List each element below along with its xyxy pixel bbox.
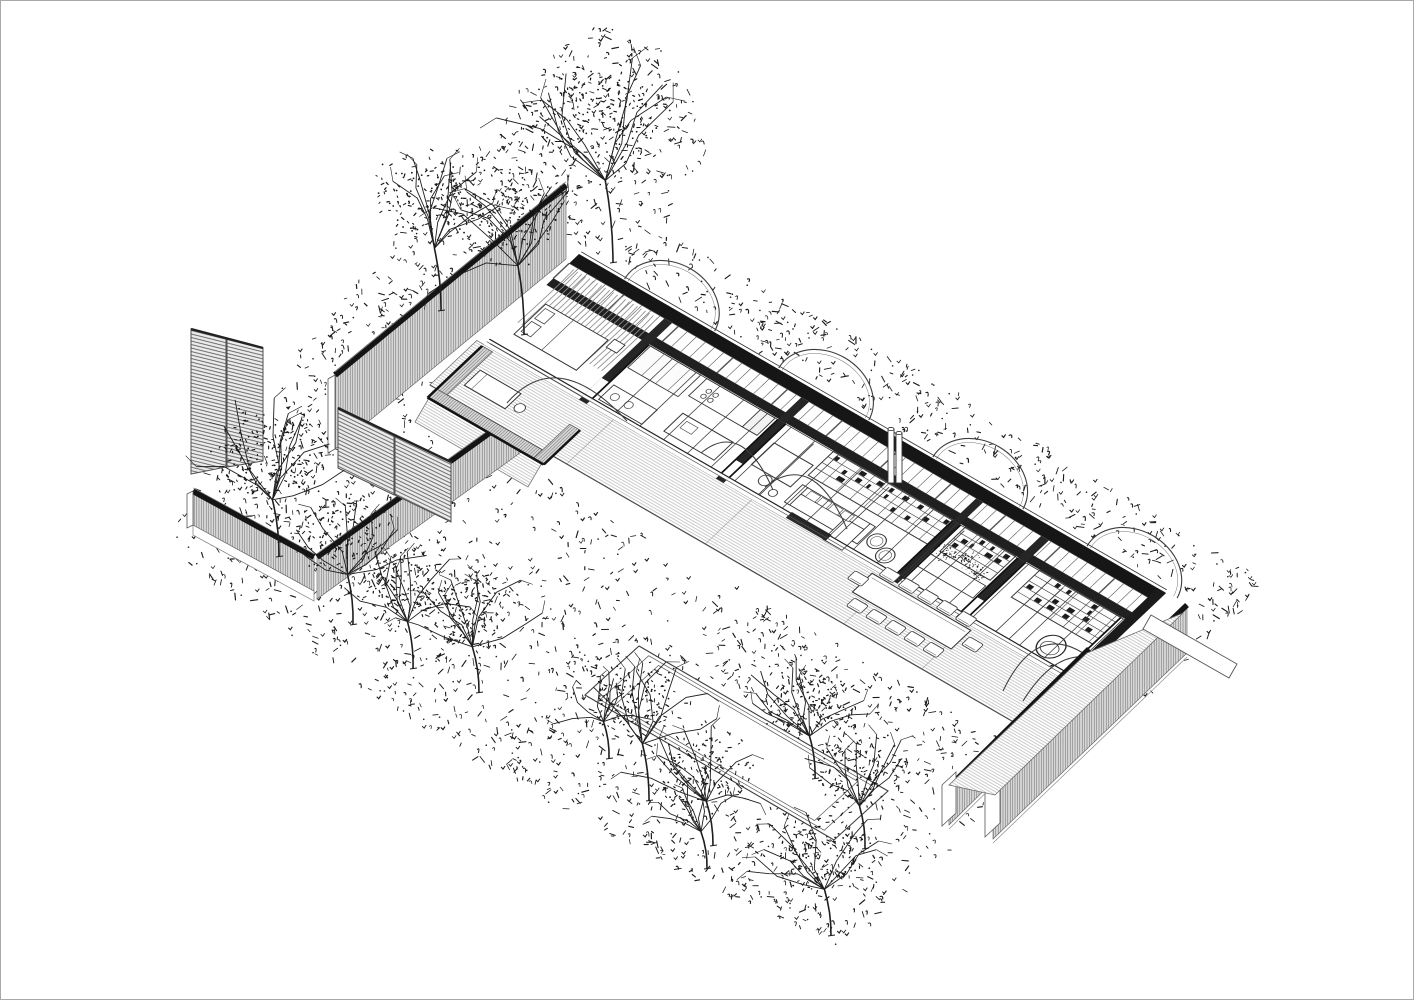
tree bbox=[384, 565, 545, 693]
axonometric-site-drawing bbox=[0, 0, 1414, 1000]
gate-west bbox=[191, 329, 263, 474]
drawing-svg bbox=[1, 1, 1414, 1000]
wall-west-low bbox=[187, 488, 314, 601]
